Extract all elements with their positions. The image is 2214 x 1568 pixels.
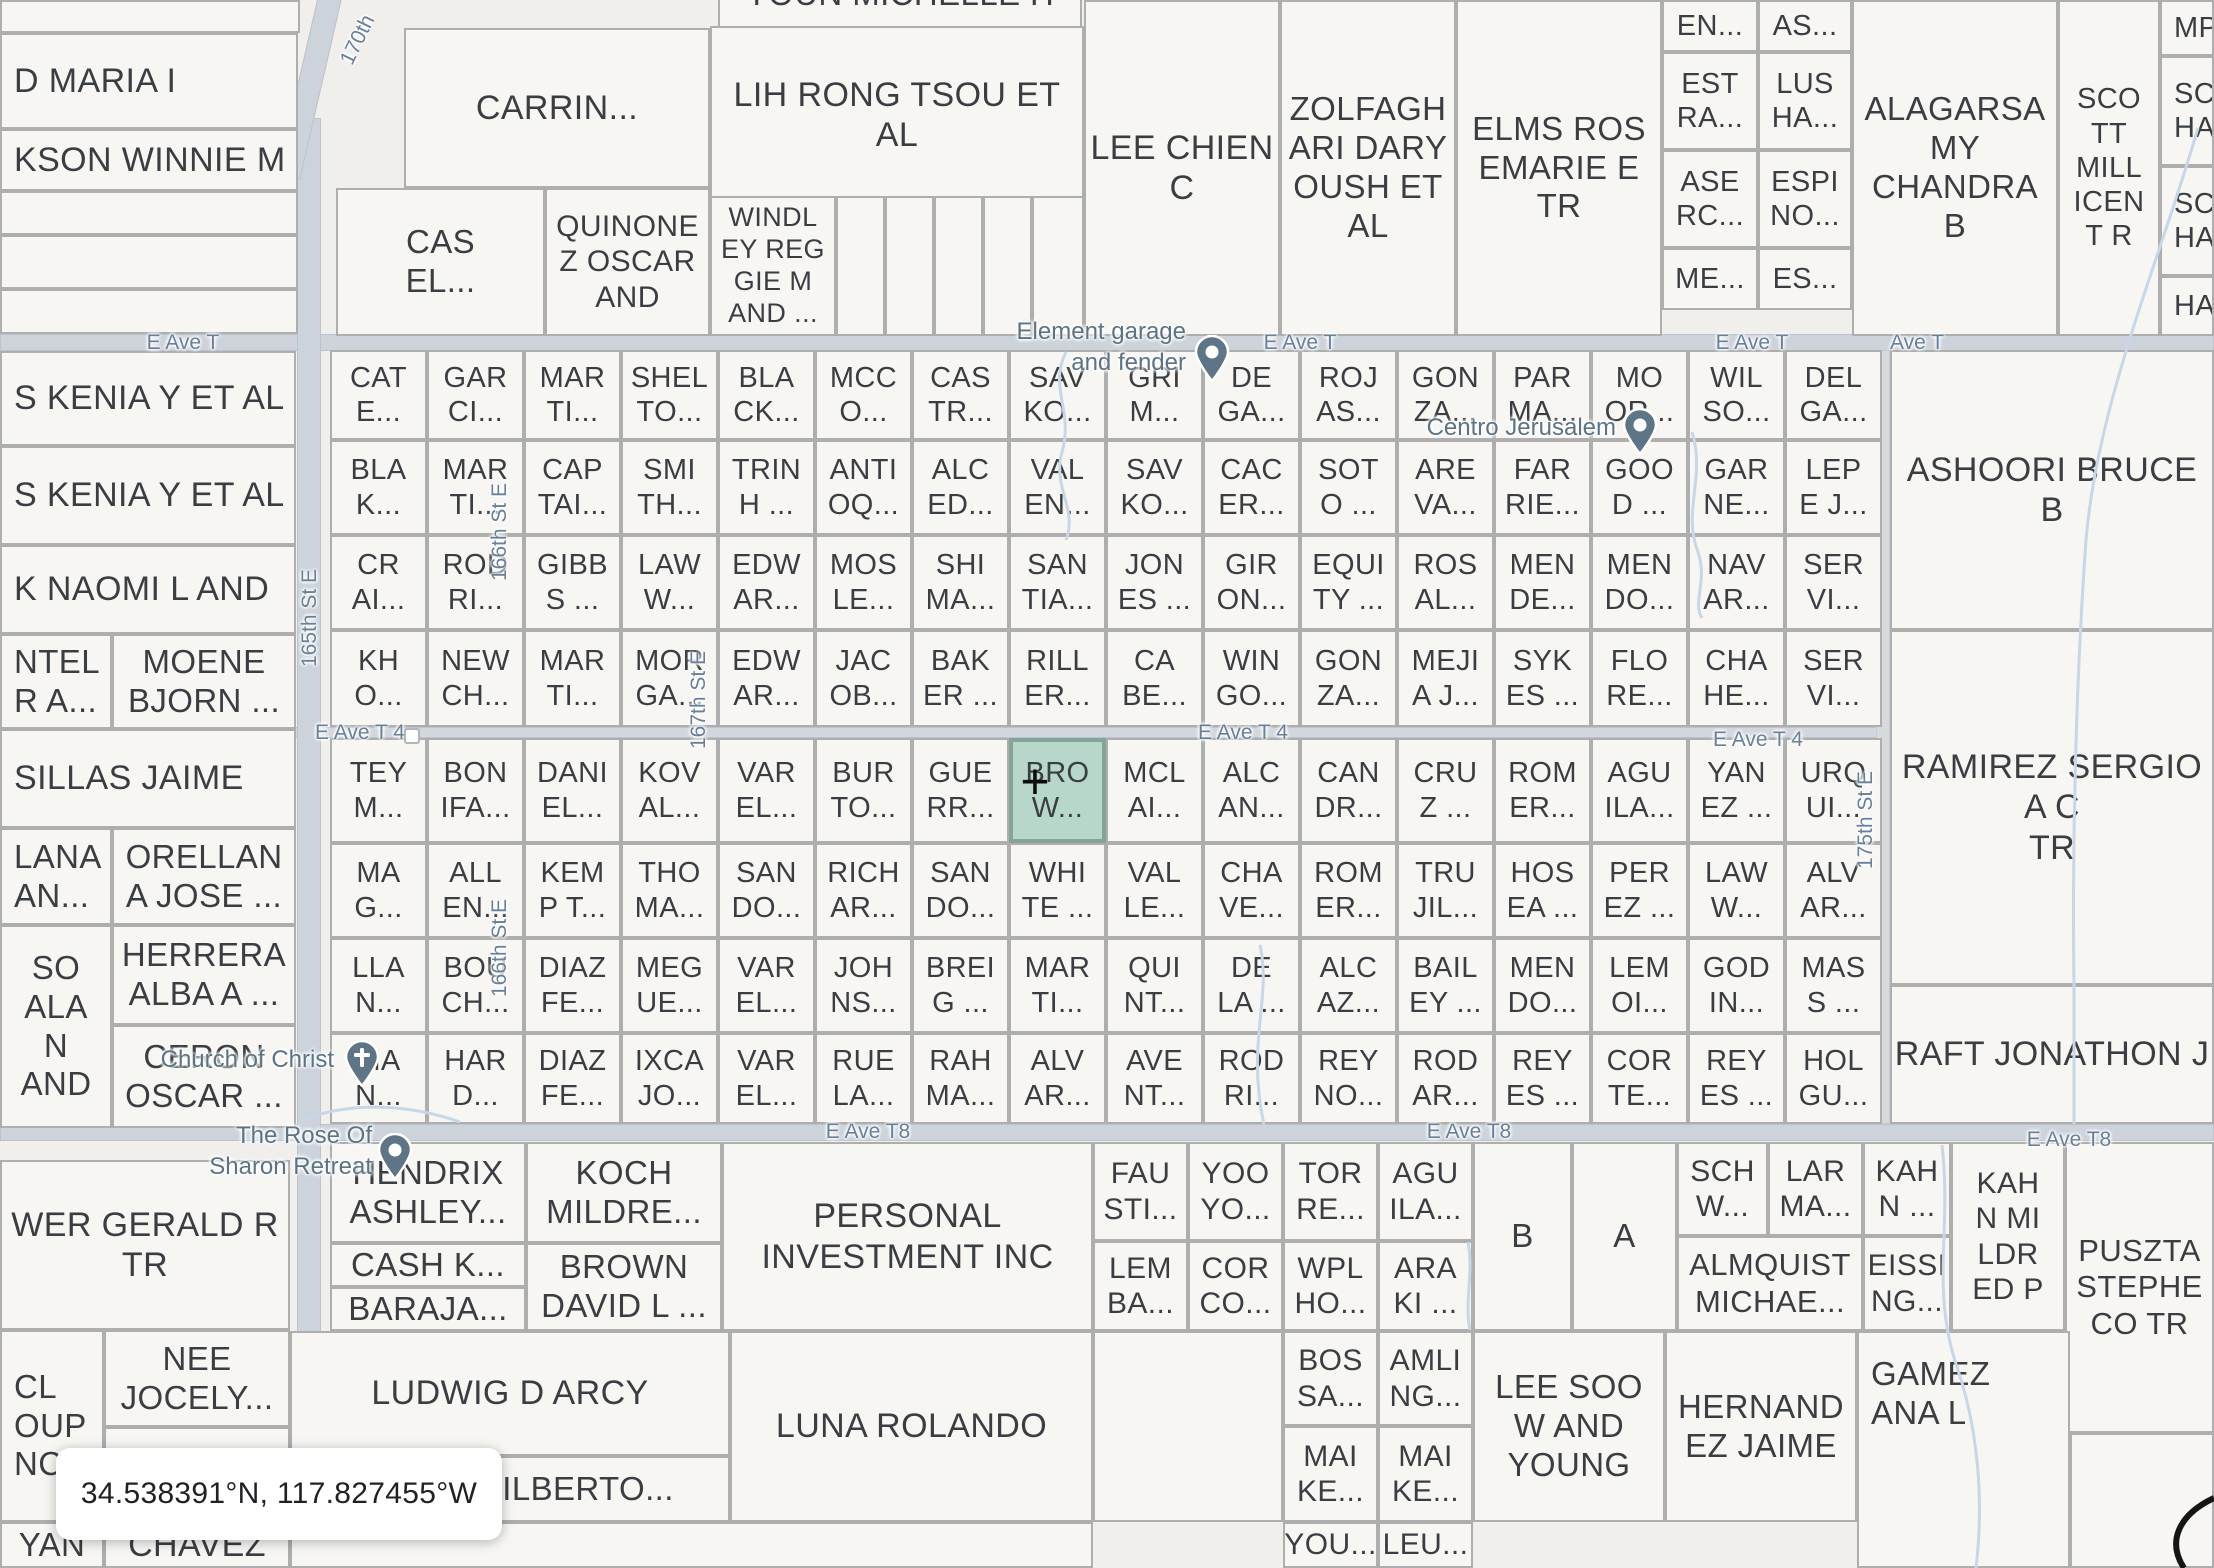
parcel-cell[interactable]: TRIN H ... — [718, 440, 815, 535]
parcel-cell[interactable]: MOENE BJORN ... — [112, 634, 296, 729]
parcel-cell[interactable]: LANA AN... — [0, 828, 112, 925]
parcel-cell[interactable]: ROD RI... — [1203, 1033, 1300, 1124]
parcel-cell[interactable]: MP... — [2160, 0, 2214, 56]
parcel-owner-label: RAH MA... — [926, 1044, 996, 1112]
parcel-cell[interactable]: SER VI... — [1785, 535, 1882, 630]
parcel-cell[interactable]: AS... — [1758, 0, 1852, 52]
parcel-cell-empty[interactable] — [983, 196, 1032, 336]
parcel-cell[interactable]: S KENIA Y ET AL — [0, 351, 296, 446]
parcel-cell[interactable]: DIAZ FE... — [524, 1033, 621, 1124]
parcel-cell[interactable]: DE LA ... — [1203, 938, 1300, 1033]
parcel-owner-label: CAC ER... — [1218, 453, 1284, 521]
parcel-owner-label: MAS S ... — [1801, 951, 1865, 1019]
parcel-owner-label: SHEL TO... — [631, 361, 708, 429]
parcel-owner-label: DIAZ FE... — [539, 1044, 607, 1112]
parcel-cell[interactable]: LEE CHIEN C — [1084, 0, 1280, 336]
parcel-cell[interactable]: S KENIA Y ET AL — [0, 446, 296, 545]
parcel-cell[interactable]: D MARIA I — [0, 33, 298, 129]
parcel-owner-label: LUNA ROLANDO — [776, 1406, 1047, 1446]
parcel-owner-label: WINDL EY REG GIE M AND ... — [721, 202, 825, 329]
parcel-cell[interactable]: ARE VA... — [1397, 440, 1494, 535]
parcel-cell[interactable]: SOT O ... — [1300, 440, 1397, 535]
parcel-cell[interactable]: REY NO... — [1300, 1033, 1397, 1124]
rose-of-sharon-label: The Rose Of Sharon Retreat — [52, 1120, 372, 1182]
parcel-cell[interactable]: SER VI... — [1785, 630, 1882, 727]
parcel-owner-label: CR AI... — [352, 548, 406, 616]
parcel-owner-label: VAL EN... — [1024, 453, 1090, 521]
parcel-cell[interactable]: FAR RIE... — [1494, 440, 1591, 535]
parcel-cell[interactable]: ANTI OQ... — [815, 440, 912, 535]
parcel-cell[interactable]: VAR EL... — [718, 1033, 815, 1124]
parcel-cell[interactable]: K NAOMI L AND — [0, 545, 296, 634]
parcel-owner-label: YOUN MICHELLE H — [746, 0, 1055, 13]
parcel-cell[interactable]: REY ES ... — [1494, 1033, 1591, 1124]
parcel-cell[interactable]: SHI MA... — [912, 535, 1009, 630]
parcel-owner-label: MEN DO... — [1508, 951, 1578, 1019]
parcel-owner-label: AGU ILA... — [1389, 1156, 1461, 1227]
parcel-cell[interactable]: ALV AR... — [1009, 1033, 1106, 1124]
parcel-cell[interactable]: PER EZ ... — [1591, 843, 1688, 938]
parcel-cell[interactable]: LUS HA... — [1758, 52, 1852, 150]
parcel-cell[interactable]: CERON OSCAR ... — [112, 1025, 296, 1128]
parcel-cell[interactable]: GAR CI... — [427, 350, 524, 440]
parcel-owner-label: FLO RE... — [1606, 644, 1672, 712]
parcel-cell[interactable]: LIH RONG TSOU ET AL — [710, 26, 1084, 204]
parcel-cell[interactable]: BARAJA... — [330, 1287, 526, 1331]
parcel-cell[interactable]: FLO RE... — [1591, 630, 1688, 727]
parcel-owner-label: KEM P T... — [539, 856, 606, 924]
parcel-cell[interactable]: KSON WINNIE M — [0, 129, 298, 191]
parcel-owner-label: YOU... — [1284, 1527, 1376, 1562]
parcel-owner-label: LANA AN... — [14, 838, 102, 916]
parcel-cell[interactable]: TEY M... — [330, 738, 427, 843]
parcel-cell[interactable]: GAR NE... — [1688, 440, 1785, 535]
parcel-cell[interactable]: GUE RR... — [912, 738, 1009, 843]
parcel-cell[interactable]: VAR EL... — [718, 938, 815, 1033]
parcel-owner-label: DIAZ FE... — [539, 951, 607, 1019]
parcel-cell[interactable]: AMLI NG... — [1378, 1331, 1473, 1426]
parcel-cell-selected[interactable]: BRO W... — [1009, 738, 1106, 843]
parcel-cell[interactable]: ALAGARSA MY CHANDRA B — [1852, 0, 2058, 336]
parcel-cell[interactable]: CAS EL... — [336, 188, 545, 336]
parcel-cell[interactable]: HERNAND EZ JAIME — [1665, 1331, 1857, 1522]
parcel-cell[interactable]: ALMQUIST MICHAE... — [1677, 1236, 1863, 1331]
parcel-owner-label: ESPI NO... — [1770, 165, 1840, 233]
parcel-cell[interactable]: CRU Z ... — [1397, 738, 1494, 843]
parcel-cell[interactable]: TRU JIL... — [1397, 843, 1494, 938]
parcel-cell[interactable]: HOL GU... — [1785, 1033, 1882, 1124]
parcel-cell[interactable]: YOO YO... — [1188, 1142, 1283, 1241]
small-poi-square — [404, 728, 420, 744]
parcel-cell[interactable]: DEL GA... — [1785, 350, 1882, 440]
parcel-cell[interactable]: DIAZ FE... — [524, 938, 621, 1033]
parcel-owner-label: ROM ER... — [1314, 856, 1383, 924]
parcel-cell[interactable]: YOU... — [1283, 1522, 1378, 1568]
parcel-cell[interactable]: ROM ER... — [1494, 738, 1591, 843]
parcel-cell[interactable]: ES... — [1758, 248, 1852, 310]
parcel-cell[interactable]: ESPI NO... — [1758, 150, 1852, 248]
parcel-cell[interactable]: CAP TAI... — [524, 440, 621, 535]
parcel-cell[interactable]: CR AI... — [330, 535, 427, 630]
parcel-cell[interactable]: MAI KE... — [1378, 1426, 1473, 1522]
parcel-owner-label: GON ZA... — [1315, 644, 1382, 712]
parcel-cell[interactable]: CHA HE... — [1688, 630, 1785, 727]
parcel-cell[interactable]: SMI TH... — [621, 440, 718, 535]
parcel-cell[interactable]: A — [1572, 1142, 1677, 1331]
parcel-cell[interactable]: RUE LA... — [815, 1033, 912, 1124]
parcel-cell[interactable]: GIR ON... — [1203, 535, 1300, 630]
parcel-cell[interactable]: LEM OI... — [1591, 938, 1688, 1033]
parcel-cell[interactable]: RICH AR... — [815, 843, 912, 938]
parcel-cell[interactable]: ELMS ROS EMARIE E TR — [1456, 0, 1662, 336]
parcel-cell[interactable]: REY ES ... — [1688, 1033, 1785, 1124]
parcel-cell[interactable]: HERRERA ALBA A ... — [112, 925, 296, 1025]
parcel-cell[interactable]: COR TE... — [1591, 1033, 1688, 1124]
coordinates-readout: 34.538391°N, 117.827455°W — [56, 1448, 502, 1540]
parcel-cell[interactable]: LAR MA... — [1768, 1142, 1863, 1236]
parcel-owner-label: MAR TI... — [1025, 951, 1091, 1019]
parcel-owner-label: YOO YO... — [1200, 1156, 1270, 1227]
parcel-owner-label: EDW AR... — [732, 548, 801, 616]
street-name-label: E Ave T 4 — [1713, 728, 1803, 752]
parcel-owner-label: AGU ILA... — [1604, 756, 1674, 824]
parcel-cell[interactable]: BON IFA... — [427, 738, 524, 843]
parcel-cell[interactable]: HAR D... — [427, 1033, 524, 1124]
parcel-owner-label: SYK ES ... — [1506, 644, 1579, 712]
parcel-cell[interactable]: EDW AR... — [718, 535, 815, 630]
parcel-cell[interactable]: CAC ER... — [1203, 440, 1300, 535]
parcel-cell[interactable]: EST RA... — [1662, 52, 1758, 150]
parcel-owner-label: EDW AR... — [732, 644, 801, 712]
parcel-cell[interactable]: CASH K... — [330, 1243, 526, 1287]
poi-marker-element-garage[interactable] — [1193, 335, 1231, 382]
parcel-owner-label: KAH N ... — [1876, 1154, 1939, 1225]
parcel-cell[interactable]: ALC AZ... — [1300, 938, 1397, 1033]
parcel-owner-label: CA BE... — [1122, 644, 1187, 712]
parcel-cell[interactable]: NAV AR... — [1688, 535, 1785, 630]
street-name-label: E Ave T8 — [826, 1120, 910, 1144]
parcel-owner-label: HERNAND EZ JAIME — [1678, 1388, 1844, 1466]
parcel-cell[interactable]: AGU ILA... — [1378, 1142, 1473, 1241]
parcel-owner-label: S KENIA Y ET AL — [14, 475, 285, 515]
parcel-cell[interactable]: EN... — [1662, 0, 1758, 52]
parcel-cell[interactable]: CHA VE... — [1203, 843, 1300, 938]
parcel-cell[interactable]: AGU ILA... — [1591, 738, 1688, 843]
parcel-cell[interactable]: BLA K... — [330, 440, 427, 535]
parcel-cell[interactable]: RILL ER... — [1009, 630, 1106, 727]
parcel-owner-label: WPL HO... — [1294, 1251, 1366, 1322]
parcel-cell[interactable]: WIL SO... — [1688, 350, 1785, 440]
parcel-owner-label: LEE SOO W AND YOUNG — [1495, 1368, 1643, 1485]
parcel-cell[interactable]: LAW W... — [621, 535, 718, 630]
parcel-cell[interactable]: MEN DO... — [1591, 535, 1688, 630]
parcel-cell[interactable]: ALC AN... — [1203, 738, 1300, 843]
parcel-owner-label: HOS EA ... — [1507, 856, 1579, 924]
parcel-cell[interactable]: KH O... — [330, 630, 427, 727]
parcel-cell[interactable]: MAR TI... — [524, 630, 621, 727]
parcel-owner-label: FAU STI... — [1103, 1156, 1177, 1227]
parcel-cell[interactable]: HOS EA ... — [1494, 843, 1591, 938]
parcel-owner-label: SER VI... — [1803, 548, 1864, 616]
parcel-cell[interactable]: YAN EZ ... — [1688, 738, 1785, 843]
parcel-owner-label: QUINONE Z OSCAR AND — [556, 209, 699, 315]
parcel-cell[interactable]: SAV KO... — [1106, 440, 1203, 535]
parcel-cell[interactable]: ROD AR... — [1397, 1033, 1494, 1124]
parcel-cell-empty[interactable] — [0, 191, 298, 235]
parcel-owner-label: REY NO... — [1314, 1044, 1384, 1112]
parcel-owner-label: LAW W... — [1705, 856, 1768, 924]
parcel-cell[interactable]: MAS S ... — [1785, 938, 1882, 1033]
poi-marker-church[interactable] — [343, 1040, 381, 1087]
parcel-owner-label: JAC OB... — [829, 644, 897, 712]
parcel-cell[interactable]: SHEL TO... — [621, 350, 718, 440]
parcel-owner-label: SO ALA N AND — [21, 949, 92, 1105]
parcel-owner-label: GIBB S ... — [537, 548, 608, 616]
parcel-cell[interactable]: BAIL EY ... — [1397, 938, 1494, 1033]
parcel-cell[interactable]: CA BE... — [1106, 630, 1203, 727]
parcel-cell[interactable]: WPL HO... — [1283, 1241, 1378, 1331]
parcel-owner-label: NTEL R A... — [14, 643, 100, 721]
parcel-cell[interactable]: LUNA ROLANDO — [730, 1331, 1093, 1522]
parcel-cell[interactable]: SC HA... — [2160, 56, 2214, 166]
parcel-cell-empty[interactable] — [1093, 1331, 1283, 1522]
parcel-cell[interactable]: GIBB S ... — [524, 535, 621, 630]
parcel-cell-empty[interactable] — [836, 196, 885, 336]
parcel-cell[interactable]: WHI TE ... — [1009, 843, 1106, 938]
street-name-label-vertical: 166th St E — [488, 899, 512, 997]
parcel-owner-label: B — [1511, 1217, 1533, 1256]
parcel-owner-label: REY ES ... — [1506, 1044, 1579, 1112]
parcel-cell[interactable]: MCL AI... — [1106, 738, 1203, 843]
parcel-cell[interactable]: MA G... — [330, 843, 427, 938]
parcel-cell[interactable]: LLA N... — [330, 938, 427, 1033]
parcel-cell[interactable]: LAW W... — [1688, 843, 1785, 938]
parcel-owner-label: MAI KE... — [1297, 1439, 1364, 1510]
parcel-owner-label: MAR TI... — [540, 361, 606, 429]
parcel-cell[interactable]: KOCH MILDRE... — [526, 1142, 722, 1243]
parcel-cell[interactable]: MAR TI... — [524, 350, 621, 440]
parcel-cell[interactable]: VAL EN... — [1009, 440, 1106, 535]
parcel-cell[interactable]: RAH MA... — [912, 1033, 1009, 1124]
parcel-owner-label: QUI NT... — [1124, 951, 1186, 1019]
parcel-cell[interactable]: BLA CK... — [718, 350, 815, 440]
parcel-cell[interactable]: LEE SOO W AND YOUNG — [1473, 1331, 1665, 1522]
parcel-cell[interactable]: BROWN DAVID L ... — [526, 1243, 722, 1331]
parcel-owner-label: ALAGARSA MY CHANDRA B — [1864, 90, 2045, 246]
parcel-owner-label: SAV KO... — [1120, 453, 1188, 521]
parcel-cell[interactable]: NTEL R A... — [0, 634, 112, 729]
parcel-cell[interactable]: ASE RC... — [1662, 150, 1758, 248]
parcel-cell[interactable]: MAR TI... — [1009, 938, 1106, 1033]
parcel-owner-label: BAK ER ... — [923, 644, 998, 712]
parcel-owner-label: HERRERA ALBA A ... — [122, 936, 286, 1014]
parcel-cell[interactable]: PUSZTA STEPHE CO TR — [2065, 1142, 2214, 1433]
parcel-owner-label: YAN EZ ... — [1701, 756, 1773, 824]
parcel-owner-label: GAR CI... — [443, 361, 507, 429]
church-of-christ-label: Church of Christ — [14, 1044, 334, 1075]
parcel-cell[interactable]: MOS LE... — [815, 535, 912, 630]
parcel-cell[interactable]: CAT E... — [330, 350, 427, 440]
parcel-cell[interactable]: EISSI NG... — [1863, 1236, 1951, 1331]
parcel-cell[interactable]: GON ZA... — [1300, 630, 1397, 727]
poi-marker-rose-of-sharon[interactable] — [376, 1133, 414, 1180]
parcel-cell[interactable]: SAN TIA... — [1009, 535, 1106, 630]
parcel-owner-label: EST RA... — [1677, 67, 1743, 135]
parcel-cell[interactable]: MEG UE... — [621, 938, 718, 1033]
parcel-cell[interactable]: HA... — [2160, 276, 2214, 336]
parcel-owner-label: EQUI TY ... — [1312, 548, 1385, 616]
parcel-owner-label: ROS AL... — [1413, 548, 1477, 616]
parcel-cell-empty[interactable] — [2070, 1433, 2214, 1568]
parcel-cell[interactable]: COR CO... — [1188, 1241, 1283, 1331]
parcel-owner-label: ZOLFAGH ARI DARY OUSH ET AL — [1289, 90, 1447, 246]
parcel-cell-empty[interactable] — [0, 289, 298, 334]
parcel-cell[interactable]: PERSONAL INVESTMENT INC — [722, 1142, 1093, 1331]
parcel-cell[interactable]: WIN GO... — [1203, 630, 1300, 727]
parcel-cell[interactable]: DANI EL... — [524, 738, 621, 843]
parcel-cell[interactable]: ROS AL... — [1397, 535, 1494, 630]
parcel-owner-label: GILBERTO... — [476, 1470, 674, 1509]
parcel-owner-label: NAV AR... — [1703, 548, 1769, 616]
parcel-owner-label: MEN DO... — [1605, 548, 1675, 616]
parcel-cell[interactable]: AVE NT... — [1106, 1033, 1203, 1124]
parcel-cell[interactable]: KAH N ... — [1863, 1142, 1951, 1236]
parcel-cell[interactable]: MEJI A J... — [1397, 630, 1494, 727]
parcel-cell[interactable]: GOD IN... — [1688, 938, 1785, 1033]
parcel-cell[interactable]: LEU... — [1378, 1522, 1473, 1568]
parcel-cell[interactable]: SCH W... — [1677, 1142, 1768, 1236]
parcel-cell[interactable]: JON ES ... — [1106, 535, 1203, 630]
parcel-cell[interactable]: WINDL EY REG GIE M AND ... — [710, 196, 836, 336]
parcel-cell[interactable]: ME... — [1662, 248, 1758, 310]
parcel-owner-label: KOV AL... — [638, 756, 700, 824]
parcel-cell-empty[interactable] — [885, 196, 934, 336]
parcel-cell[interactable]: CARRIN... — [404, 28, 710, 188]
parcel-owner-label: ARA KI ... — [1393, 1251, 1457, 1322]
parcel-cell[interactable]: LEP E J... — [1785, 440, 1882, 535]
parcel-cell[interactable]: BOS SA... — [1283, 1331, 1378, 1426]
parcel-cell[interactable]: BREI G ... — [912, 938, 1009, 1033]
parcel-cell[interactable]: NEE JOCELY... — [104, 1330, 290, 1427]
parcel-owner-label: SAN TIA... — [1022, 548, 1094, 616]
parcel-cell[interactable]: WER GERALD R TR — [0, 1160, 290, 1330]
parcel-cell[interactable]: LEM BA... — [1093, 1241, 1188, 1331]
parcel-cell[interactable]: GAMEZ ANA L — [1857, 1331, 2070, 1568]
parcel-cell[interactable]: KEM P T... — [524, 843, 621, 938]
parcel-owner-label: CAN DR... — [1314, 756, 1382, 824]
parcel-cell[interactable]: MAI KE... — [1283, 1426, 1378, 1522]
parcel-cell[interactable]: SAN DO... — [718, 843, 815, 938]
poi-marker-centro-jerusalem[interactable] — [1621, 408, 1659, 455]
parcel-owner-label: JOH NS... — [830, 951, 896, 1019]
parcel-cell[interactable]: SYK ES ... — [1494, 630, 1591, 727]
parcel-cell[interactable]: EDW AR... — [718, 630, 815, 727]
parcel-cell[interactable]: QUI NT... — [1106, 938, 1203, 1033]
parcel-cell[interactable]: NEW CH... — [427, 630, 524, 727]
parcel-cell[interactable]: FAU STI... — [1093, 1142, 1188, 1241]
parcel-cell[interactable]: VAR EL... — [718, 738, 815, 843]
parcel-owner-label: AS... — [1773, 9, 1838, 43]
parcel-owner-label: K NAOMI L AND — [14, 569, 269, 609]
parcel-cell[interactable]: TOR RE... — [1283, 1142, 1378, 1241]
parcel-owner-label: SAN DO... — [732, 856, 802, 924]
parcel-owner-label: CHA VE... — [1219, 856, 1284, 924]
parcel-cell[interactable]: VAL LE... — [1106, 843, 1203, 938]
parcel-cell[interactable]: BUR TO... — [815, 738, 912, 843]
parcel-cell[interactable]: SCO TT MILL ICEN T R — [2058, 0, 2160, 336]
parcel-cell[interactable]: ORELLAN A JOSE ... — [112, 828, 296, 925]
parcel-cell[interactable]: JOH NS... — [815, 938, 912, 1033]
parcel-cell[interactable]: SILLAS JAIME — [0, 729, 296, 828]
parcel-owner-label: ES... — [1773, 262, 1838, 296]
parcel-cell[interactable]: ZOLFAGH ARI DARY OUSH ET AL — [1280, 0, 1456, 336]
parcel-cell[interactable]: RAFT JONATHON J — [1890, 985, 2214, 1124]
parcel-owner-label: ALC AZ... — [1317, 951, 1380, 1019]
parcel-cell-empty[interactable] — [0, 0, 300, 33]
parcel-cell[interactable]: ALC ED... — [912, 440, 1009, 535]
parcel-owner-label: ME... — [1675, 262, 1745, 296]
parcel-cell[interactable]: JAC OB... — [815, 630, 912, 727]
parcel-owner-label: RICH AR... — [827, 856, 900, 924]
parcel-owner-label: MEJI A J... — [1412, 644, 1480, 712]
parcel-cell[interactable]: EQUI TY ... — [1300, 535, 1397, 630]
parcel-owner-label: LEM OI... — [1609, 951, 1670, 1019]
parcel-owner-label: MOS LE... — [830, 548, 897, 616]
parcel-owner-label: BLA K... — [350, 453, 406, 521]
parcel-owner-label: SCH W... — [1690, 1154, 1755, 1225]
parcel-owner-label: PERSONAL INVESTMENT INC — [761, 1196, 1053, 1276]
parcel-cell[interactable]: SC HA... — [2160, 166, 2214, 276]
parcel-cell-empty[interactable] — [0, 235, 298, 289]
parcel-cell[interactable]: B — [1473, 1142, 1572, 1331]
parcel-cell-empty[interactable] — [1032, 196, 1084, 336]
parcel-owner-label: FAR RIE... — [1505, 453, 1580, 521]
parcel-owner-label: BLA CK... — [733, 361, 799, 429]
parcel-map[interactable]: YOUN MICHELLE HCARRIN...LIH RONG TSOU ET… — [0, 0, 2214, 1568]
parcel-cell[interactable]: KAH N MI LDR ED P — [1951, 1142, 2065, 1331]
parcel-cell[interactable]: MEN DO... — [1494, 938, 1591, 1033]
parcel-owner-label: THO MA... — [635, 856, 705, 924]
parcel-cell[interactable]: THO MA... — [621, 843, 718, 938]
parcel-owner-label: CAP TAI... — [538, 453, 608, 521]
parcel-cell[interactable]: KOV AL... — [621, 738, 718, 843]
parcel-cell[interactable]: ASHOORI BRUCE B — [1890, 350, 2214, 630]
parcel-cell[interactable]: RAMIREZ SERGIO A C TR — [1890, 630, 2214, 985]
parcel-cell[interactable]: CAN DR... — [1300, 738, 1397, 843]
parcel-cell[interactable]: ROM ER... — [1300, 843, 1397, 938]
parcel-cell[interactable]: ARA KI ... — [1378, 1241, 1473, 1331]
parcel-cell[interactable]: IXCA JO... — [621, 1033, 718, 1124]
parcel-cell[interactable]: MEN DE... — [1494, 535, 1591, 630]
parcel-owner-label: CAS EL... — [406, 223, 476, 301]
parcel-cell[interactable]: BAK ER ... — [912, 630, 1009, 727]
parcel-owner-label: HAR D... — [444, 1044, 506, 1112]
parcel-cell[interactable]: QUINONE Z OSCAR AND — [545, 188, 710, 336]
coordinates-text: 34.538391°N, 117.827455°W — [81, 1477, 477, 1511]
parcel-owner-label: A — [1613, 1217, 1635, 1256]
street-name-label: E Ave T 4 — [315, 721, 405, 745]
parcel-cell-empty[interactable] — [934, 196, 983, 336]
parcel-cell[interactable]: SAN DO... — [912, 843, 1009, 938]
parcel-owner-label: VAL LE... — [1124, 856, 1186, 924]
parcel-owner-label: TEY M... — [350, 756, 408, 824]
parcel-owner-label: JON ES ... — [1118, 548, 1191, 616]
parcel-owner-label: TOR RE... — [1296, 1156, 1365, 1227]
parcel-cell[interactable]: SO ALA N AND — [0, 925, 112, 1128]
parcel-owner-label: IXCA JO... — [635, 1044, 704, 1112]
parcel-cell[interactable]: LUDWIG D ARCY — [290, 1331, 730, 1456]
parcel-owner-label: LAR MA... — [1779, 1154, 1851, 1225]
